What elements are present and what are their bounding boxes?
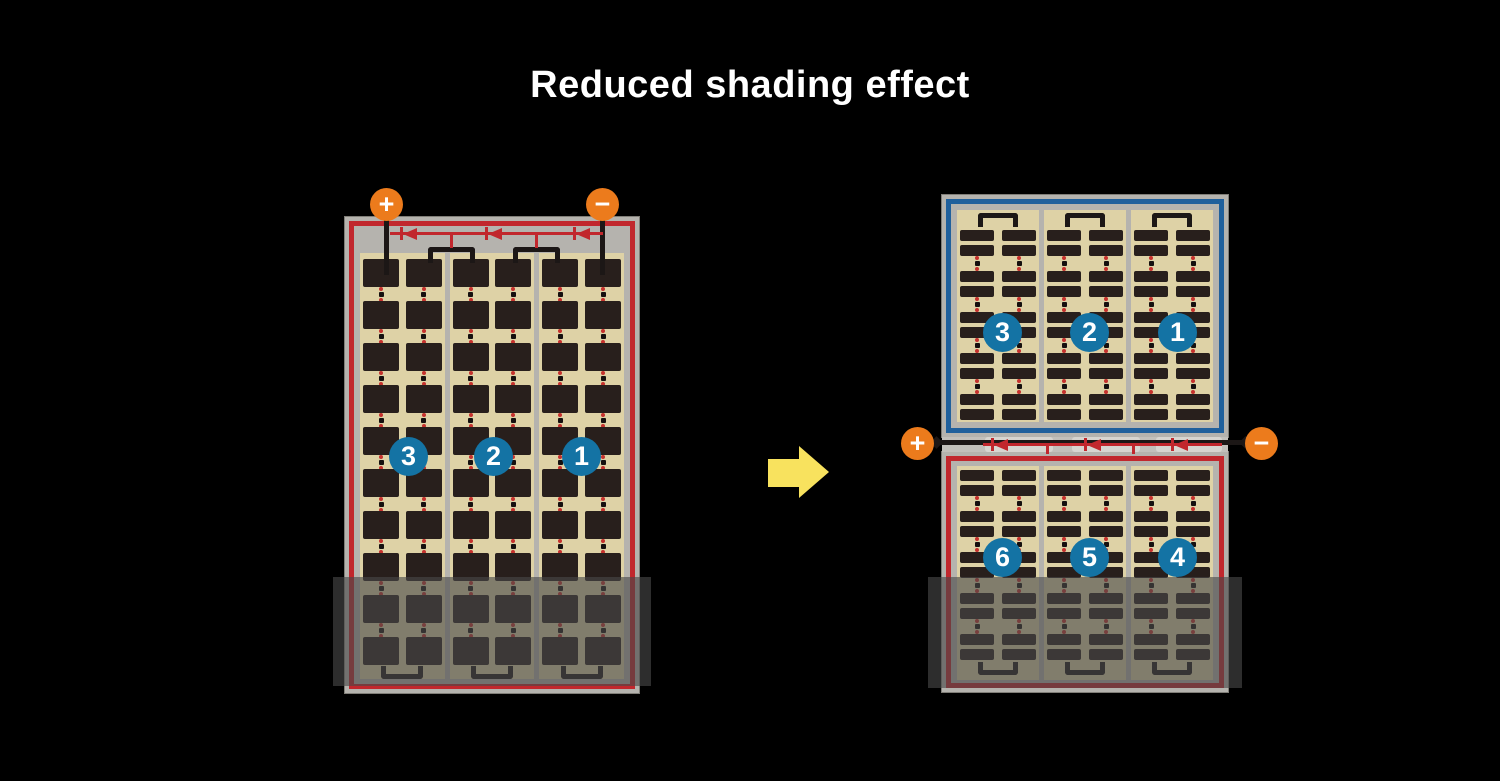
cell-connector-row [450, 497, 535, 511]
solder-bar-icon [379, 418, 384, 423]
solder-bar-icon [1062, 501, 1067, 506]
cell-row [450, 385, 535, 413]
half-cut-cell [1002, 230, 1036, 241]
cell-connector-row [957, 496, 1039, 511]
solder-dot-icon [379, 497, 383, 501]
solar-cell [453, 301, 489, 329]
cell-connector [379, 455, 384, 470]
cell-connector [1017, 379, 1022, 394]
solder-dot-icon [975, 297, 979, 301]
solder-dot-icon [1191, 537, 1195, 541]
solder-bar-icon [421, 292, 426, 297]
solder-dot-icon [422, 539, 426, 543]
solder-dot-icon [1104, 379, 1108, 383]
solder-bar-icon [379, 544, 384, 549]
solder-dot-icon [422, 413, 426, 417]
cell-connector-row [957, 297, 1039, 312]
solder-bar-icon [975, 384, 980, 389]
solder-bar-icon [1149, 501, 1154, 506]
solar-cell [585, 343, 621, 371]
cell-connector [511, 371, 516, 386]
solder-dot-icon [379, 413, 383, 417]
solder-dot-icon [558, 413, 562, 417]
cell-connector [421, 371, 426, 386]
string-number-badge: 2 [474, 437, 513, 476]
solar-cell [363, 259, 399, 287]
diode-tap-wire [450, 235, 453, 248]
solar-cell [453, 385, 489, 413]
solder-bar-icon [379, 292, 384, 297]
cell-connector [1062, 537, 1067, 552]
half-cut-cell [1134, 394, 1168, 405]
plus-terminal-wire [384, 219, 389, 275]
cell-connector-row [450, 539, 535, 553]
solder-dot-icon [1062, 496, 1066, 500]
solar-cell [542, 385, 578, 413]
solder-bar-icon [1017, 384, 1022, 389]
cell-connector [511, 539, 516, 554]
solder-dot-icon [558, 539, 562, 543]
solar-cell [542, 301, 578, 329]
solder-bar-icon [1062, 343, 1067, 348]
half-cut-cell [1047, 245, 1081, 256]
half-cut-cell [1176, 230, 1210, 241]
solder-dot-icon [601, 287, 605, 291]
cell-row [1131, 286, 1213, 297]
cell-row [1131, 470, 1213, 481]
solder-bar-icon [421, 334, 426, 339]
solder-bar-icon [468, 502, 473, 507]
solder-dot-icon [975, 379, 979, 383]
cell-connector [558, 413, 563, 428]
cell-connector [1149, 496, 1154, 511]
cell-connector-row [360, 497, 445, 511]
shading-overlay-right [928, 577, 1242, 688]
half-cut-cell [1089, 271, 1123, 282]
solder-bar-icon [1149, 542, 1154, 547]
cell-row [450, 259, 535, 287]
cell-connector [468, 287, 473, 302]
solder-dot-icon [379, 287, 383, 291]
solder-dot-icon [601, 371, 605, 375]
solar-cell [453, 511, 489, 539]
cell-row [1044, 526, 1126, 537]
bypass-diode-icon [573, 227, 590, 240]
solder-dot-icon [1149, 297, 1153, 301]
solder-bar-icon [1149, 384, 1154, 389]
cell-row [957, 511, 1039, 522]
cell-row [450, 511, 535, 539]
diode-tap-wire [1046, 446, 1049, 454]
cell-connector [421, 413, 426, 428]
cell-connector [379, 287, 384, 302]
solder-dot-icon [469, 329, 473, 333]
solder-bar-icon [511, 418, 516, 423]
half-cut-cell [960, 286, 994, 297]
half-cut-cell [1089, 230, 1123, 241]
cell-connector [1104, 379, 1109, 394]
solder-bar-icon [601, 292, 606, 297]
cell-row [957, 271, 1039, 282]
half-cut-cell [1134, 511, 1168, 522]
solder-bar-icon [379, 334, 384, 339]
cell-connector [468, 497, 473, 512]
solder-bar-icon [1062, 542, 1067, 547]
solder-bar-icon [511, 376, 516, 381]
solder-bar-icon [511, 544, 516, 549]
solder-dot-icon [558, 371, 562, 375]
half-cut-cell [1089, 485, 1123, 496]
bypass-diode-icon [1171, 438, 1188, 451]
solder-dot-icon [379, 539, 383, 543]
solar-cell [406, 343, 442, 371]
solder-bar-icon [468, 376, 473, 381]
half-cut-cell [1047, 394, 1081, 405]
half-cut-cell [1002, 394, 1036, 405]
cell-connector-row [360, 287, 445, 301]
solar-cell [495, 511, 531, 539]
cell-connector [511, 329, 516, 344]
cell-row [1044, 470, 1126, 481]
string-number-badge: 1 [562, 437, 601, 476]
half-cut-cell [1002, 353, 1036, 364]
cell-connector [379, 413, 384, 428]
cell-connector-row [1044, 256, 1126, 271]
string-number-badge: 3 [983, 313, 1022, 352]
cell-connector [601, 539, 606, 554]
cell-row [1131, 271, 1213, 282]
half-cut-cell [1134, 286, 1168, 297]
solar-cell [406, 511, 442, 539]
cell-connector [601, 371, 606, 386]
cell-connector-row [1131, 256, 1213, 271]
solder-dot-icon [469, 413, 473, 417]
cell-connector [379, 539, 384, 554]
solder-dot-icon [1191, 496, 1195, 500]
solder-bar-icon [975, 343, 980, 348]
solder-dot-icon [1149, 496, 1153, 500]
solder-dot-icon [1062, 338, 1066, 342]
half-cut-cell [960, 394, 994, 405]
half-cut-cell [1002, 409, 1036, 420]
solder-bar-icon [1104, 384, 1109, 389]
diode-tap-wire [1132, 446, 1135, 454]
solder-dot-icon [1062, 256, 1066, 260]
solar-cell [542, 343, 578, 371]
solder-bar-icon [511, 502, 516, 507]
half-cut-cell [1089, 353, 1123, 364]
cell-connector-row [539, 413, 624, 427]
minus-terminal: − [586, 188, 619, 221]
minus-terminal-wire [600, 219, 605, 275]
half-cut-cell [1176, 526, 1210, 537]
cell-connector [511, 287, 516, 302]
string-number-badge: 4 [1158, 538, 1197, 577]
cell-row [1044, 394, 1126, 405]
half-cut-cell [1047, 485, 1081, 496]
diode-tap-wire [535, 235, 538, 248]
cell-row [957, 368, 1039, 379]
cell-connector [421, 539, 426, 554]
solder-dot-icon [1017, 537, 1021, 541]
cell-connector [1149, 256, 1154, 271]
cell-row [1131, 368, 1213, 379]
cell-connector [1062, 338, 1067, 353]
cell-connector-row [1044, 297, 1126, 312]
solder-bar-icon [1062, 384, 1067, 389]
half-cut-cell [1176, 470, 1210, 481]
solder-bar-icon [1149, 261, 1154, 266]
solder-bar-icon [975, 542, 980, 547]
cell-connector-row [450, 371, 535, 385]
half-cut-cell [1089, 368, 1123, 379]
cell-row [1131, 353, 1213, 364]
half-cut-cell [1089, 394, 1123, 405]
half-cut-cell [1134, 230, 1168, 241]
cell-connector [1017, 496, 1022, 511]
half-cut-cell [1176, 394, 1210, 405]
cell-row [1044, 245, 1126, 256]
solder-dot-icon [511, 539, 515, 543]
cell-connector-row [360, 329, 445, 343]
solder-dot-icon [469, 497, 473, 501]
cell-row [539, 301, 624, 329]
cell-row [450, 343, 535, 371]
cell-connector [601, 287, 606, 302]
half-cut-cell [1134, 526, 1168, 537]
cell-connector [1104, 256, 1109, 271]
half-cut-cell [960, 353, 994, 364]
cell-row [360, 511, 445, 539]
solder-bar-icon [379, 460, 384, 465]
half-cut-cell [1176, 286, 1210, 297]
string-top-return-wire [1065, 213, 1105, 227]
cell-row [1044, 368, 1126, 379]
string-number-badge: 6 [983, 538, 1022, 577]
half-cut-cell [1176, 353, 1210, 364]
cell-connector [601, 455, 606, 470]
cell-connector-row [957, 379, 1039, 394]
half-cut-cell [1089, 286, 1123, 297]
cell-connector-row [360, 539, 445, 553]
solder-dot-icon [1062, 537, 1066, 541]
string-top-return-wire [513, 247, 560, 263]
solder-dot-icon [1149, 256, 1153, 260]
solder-bar-icon [468, 418, 473, 423]
cell-connector-row [1131, 379, 1213, 394]
solder-bar-icon [558, 502, 563, 507]
solar-cell [406, 301, 442, 329]
solder-dot-icon [1191, 379, 1195, 383]
half-cut-cell [1089, 511, 1123, 522]
solder-bar-icon [1062, 302, 1067, 307]
solder-dot-icon [511, 497, 515, 501]
solar-cell [406, 385, 442, 413]
cell-connector [511, 497, 516, 512]
cell-connector [601, 413, 606, 428]
solder-bar-icon [421, 502, 426, 507]
half-cut-cell [1002, 286, 1036, 297]
solder-bar-icon [468, 334, 473, 339]
cell-row [539, 511, 624, 539]
half-cut-cell [960, 511, 994, 522]
solder-bar-icon [558, 544, 563, 549]
half-cut-cell [1002, 368, 1036, 379]
solder-bar-icon [975, 501, 980, 506]
cell-row [1044, 271, 1126, 282]
half-cut-cell [1134, 485, 1168, 496]
solder-bar-icon [1062, 261, 1067, 266]
solder-bar-icon [1149, 343, 1154, 348]
half-cut-cell [1176, 485, 1210, 496]
solder-bar-icon [558, 292, 563, 297]
cell-row [957, 230, 1039, 241]
reduced-shading-diagram: Reduced shading effect + − 3 2 1 + − 3 2 [0, 0, 1500, 781]
bypass-diode-icon [400, 227, 417, 240]
solder-dot-icon [601, 455, 605, 459]
solder-dot-icon [975, 256, 979, 260]
cell-connector [1191, 256, 1196, 271]
solder-dot-icon [558, 287, 562, 291]
cell-connector [1062, 256, 1067, 271]
cell-row [1131, 409, 1213, 420]
bypass-diode-icon [991, 438, 1008, 451]
solder-dot-icon [1191, 256, 1195, 260]
solder-bar-icon [601, 502, 606, 507]
cell-connector [1017, 297, 1022, 312]
solder-dot-icon [601, 497, 605, 501]
solder-dot-icon [975, 496, 979, 500]
solder-dot-icon [422, 287, 426, 291]
solder-bar-icon [558, 418, 563, 423]
solder-bar-icon [1017, 501, 1022, 506]
solar-cell [453, 259, 489, 287]
solar-cell [542, 259, 578, 287]
cell-connector [975, 338, 980, 353]
solder-bar-icon [1104, 261, 1109, 266]
solar-cell [542, 511, 578, 539]
cell-connector [558, 497, 563, 512]
cell-connector [601, 329, 606, 344]
half-cut-cell [1002, 245, 1036, 256]
cell-row [1044, 511, 1126, 522]
string-number-badge: 5 [1070, 538, 1109, 577]
cell-connector [1191, 496, 1196, 511]
solder-bar-icon [1017, 302, 1022, 307]
solder-dot-icon [975, 537, 979, 541]
solder-dot-icon [1191, 297, 1195, 301]
solder-bar-icon [601, 460, 606, 465]
cell-connector [468, 413, 473, 428]
cell-connector-row [957, 256, 1039, 271]
string-number-badge: 1 [1158, 313, 1197, 352]
solder-dot-icon [1104, 297, 1108, 301]
solder-bar-icon [601, 334, 606, 339]
cell-connector-row [450, 329, 535, 343]
solder-dot-icon [1104, 496, 1108, 500]
cell-row [957, 394, 1039, 405]
solder-bar-icon [558, 376, 563, 381]
cell-connector [379, 329, 384, 344]
half-cut-cell [1047, 526, 1081, 537]
cell-connector [379, 497, 384, 512]
solder-dot-icon [1017, 496, 1021, 500]
solder-dot-icon [511, 371, 515, 375]
solder-bar-icon [511, 292, 516, 297]
half-cut-cell [1134, 470, 1168, 481]
half-cut-cell [1047, 286, 1081, 297]
cell-row [1131, 394, 1213, 405]
cell-row [957, 409, 1039, 420]
cell-connector-row [1044, 496, 1126, 511]
half-cut-cell [1176, 271, 1210, 282]
solder-dot-icon [558, 329, 562, 333]
half-cut-cell [960, 485, 994, 496]
half-cut-cell [1002, 271, 1036, 282]
solder-dot-icon [1062, 379, 1066, 383]
cell-connector [1191, 379, 1196, 394]
cell-connector [421, 329, 426, 344]
cell-connector [468, 455, 473, 470]
solder-dot-icon [1149, 379, 1153, 383]
solder-dot-icon [469, 455, 473, 459]
half-cut-cell [1134, 409, 1168, 420]
cell-connector [975, 537, 980, 552]
solar-cell [585, 511, 621, 539]
solder-bar-icon [975, 261, 980, 266]
cell-row [957, 353, 1039, 364]
solder-bar-icon [1149, 302, 1154, 307]
solder-dot-icon [511, 287, 515, 291]
half-cut-cell [1047, 368, 1081, 379]
half-cut-cell [960, 470, 994, 481]
cell-row [1131, 245, 1213, 256]
solder-dot-icon [511, 329, 515, 333]
solder-bar-icon [468, 460, 473, 465]
cell-connector [421, 497, 426, 512]
solder-dot-icon [422, 497, 426, 501]
solder-dot-icon [558, 497, 562, 501]
solder-dot-icon [379, 329, 383, 333]
solder-dot-icon [1062, 297, 1066, 301]
half-cut-cell [1134, 271, 1168, 282]
solder-dot-icon [1017, 256, 1021, 260]
cell-connector [558, 329, 563, 344]
half-cut-cell [1089, 526, 1123, 537]
page-title: Reduced shading effect [0, 64, 1500, 107]
cell-connector [558, 287, 563, 302]
cell-connector-row [1044, 379, 1126, 394]
cell-row [450, 301, 535, 329]
cell-row [360, 301, 445, 329]
solder-dot-icon [1017, 297, 1021, 301]
solder-dot-icon [469, 287, 473, 291]
cell-row [1044, 485, 1126, 496]
solder-dot-icon [1149, 537, 1153, 541]
half-cut-cell [1176, 245, 1210, 256]
solder-bar-icon [1104, 501, 1109, 506]
solar-cell [495, 301, 531, 329]
cell-connector [379, 371, 384, 386]
solder-bar-icon [421, 376, 426, 381]
cell-row [957, 286, 1039, 297]
shading-overlay-left [333, 577, 651, 686]
cell-connector [1149, 338, 1154, 353]
cell-connector-row [450, 287, 535, 301]
plus-terminal: + [901, 427, 934, 460]
cell-connector [1149, 537, 1154, 552]
solder-dot-icon [469, 371, 473, 375]
